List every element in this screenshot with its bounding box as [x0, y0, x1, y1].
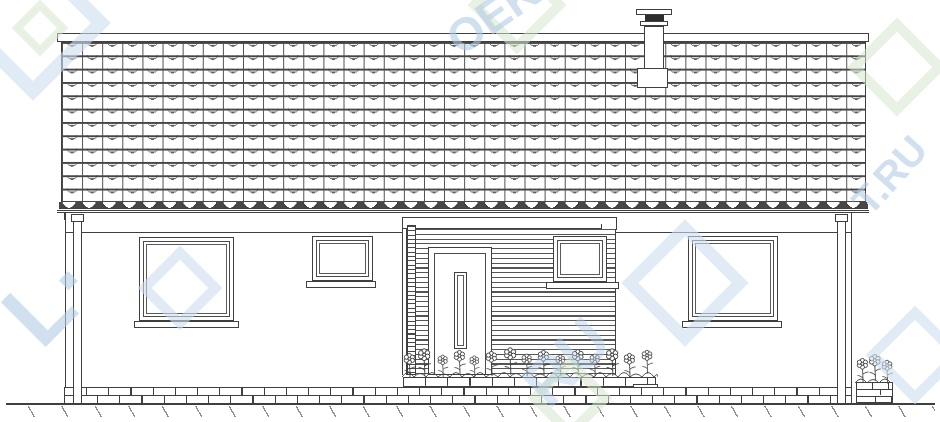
planter-flowers: [851, 351, 898, 384]
ground-hatching: [6, 406, 935, 417]
chimney-stack: [644, 26, 664, 70]
window-frame: [143, 241, 230, 317]
right-large-window: [688, 236, 778, 321]
left-small-window-sill: [306, 281, 376, 288]
wall-brick-plinth: [64, 387, 852, 404]
left-small-window: [312, 236, 373, 281]
downspout-right: [837, 214, 846, 403]
downspout-left-collar: [71, 214, 84, 222]
watermark-diamond: [12, 0, 69, 56]
elevation-drawing-canvas: L· OEKT T.RU RU: [0, 0, 940, 422]
roof-eave-tile-ends: [59, 202, 868, 209]
entry-bay-header-band: [402, 217, 617, 229]
downspout-left: [73, 214, 82, 403]
left-large-window-sill: [134, 321, 239, 328]
entry-door-glazing-inner: [457, 275, 464, 346]
window-glass: [560, 243, 600, 275]
roof-tile-grid: [61, 42, 866, 202]
window-glass: [146, 244, 227, 314]
right-large-window-sill: [682, 321, 782, 328]
brick-flower-planter: [856, 382, 893, 403]
chimney-base-flashing: [637, 68, 668, 88]
left-large-window: [139, 237, 234, 321]
window-frame: [316, 240, 369, 277]
window-frame: [692, 240, 774, 317]
entry-door-glazing-slot: [454, 272, 467, 349]
window-frame: [557, 240, 603, 278]
window-glass: [695, 243, 771, 314]
roof-ridge-band: [57, 33, 869, 42]
window-glass: [319, 243, 366, 274]
flower-bed-center: [402, 344, 658, 378]
entry-bay-window: [553, 236, 607, 282]
downspout-right-collar: [835, 214, 848, 222]
entry-bay-window-sill: [546, 282, 619, 289]
